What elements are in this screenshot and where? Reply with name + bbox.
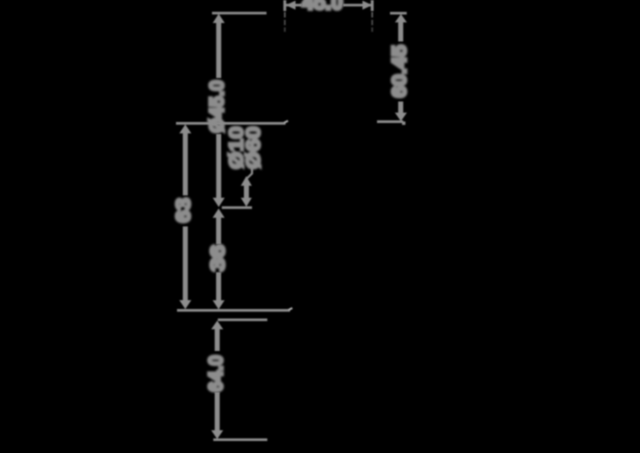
svg-text:36: 36 (207, 245, 229, 272)
svg-text:Ø60: Ø60 (243, 126, 265, 169)
svg-text:60.45: 60.45 (389, 45, 411, 98)
svg-text:63: 63 (173, 198, 195, 223)
svg-text:45.0: 45.0 (302, 0, 343, 15)
svg-text:64.0: 64.0 (206, 355, 228, 392)
svg-text:Ø45.0: Ø45.0 (207, 80, 229, 133)
